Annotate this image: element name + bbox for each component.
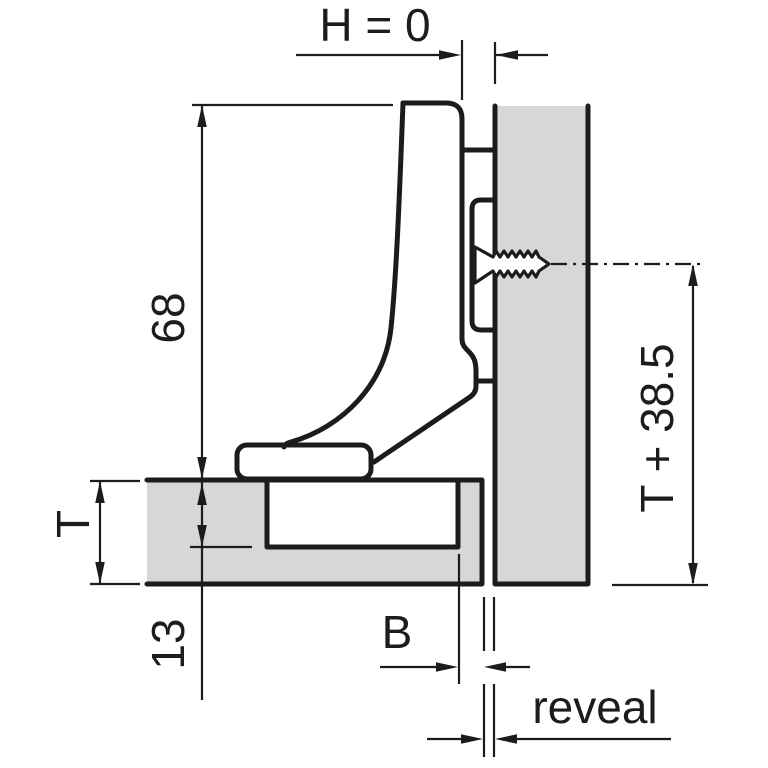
dim-door-thickness-t: T [47,481,140,584]
dim-reveal-label: reveal [532,681,657,733]
dim-reveal: reveal [427,597,671,757]
cabinet-panel [495,106,588,584]
dim-overlay-label: H = 0 [319,0,430,51]
dim-overlay-h: H = 0 [296,0,548,100]
door-panel [147,480,482,584]
cabinet-panel-fill [495,106,588,584]
dim-reveal-arrow-left [495,734,517,744]
dim-b-arrow-right [436,662,458,672]
dim-mounting-height: T + 38.5 [612,264,708,585]
dim-t385-arrow-up [688,264,698,286]
dim-t385-arrow-down [688,563,698,585]
dim-overlay-arrow-right [439,50,461,60]
cup-bore-fill [267,482,458,547]
dim-t385-label: T + 38.5 [631,343,683,512]
dim-t-arrow-down [95,562,105,584]
technical-drawing-canvas: H = 0 68 13 T B [0,0,768,768]
hinge-cup-flange [237,445,371,479]
dim-t-label: T [47,510,99,538]
dim-13-label: 13 [142,618,194,669]
dim-b-arrow-left [484,662,506,672]
hinge-arm-left-edge [284,103,403,447]
hinge-cross-section-diagram: H = 0 68 13 T B [0,0,768,768]
dim-68-arrow-down [197,457,207,479]
dim-b-label: B [382,606,413,658]
hinge-arm [284,103,476,462]
dim-68-label: 68 [142,292,194,343]
dim-reveal-arrow-right [461,734,483,744]
hinge-arm-right-edge [374,103,476,462]
dim-t-arrow-up [95,481,105,503]
dim-68-arrow-up [197,105,207,127]
